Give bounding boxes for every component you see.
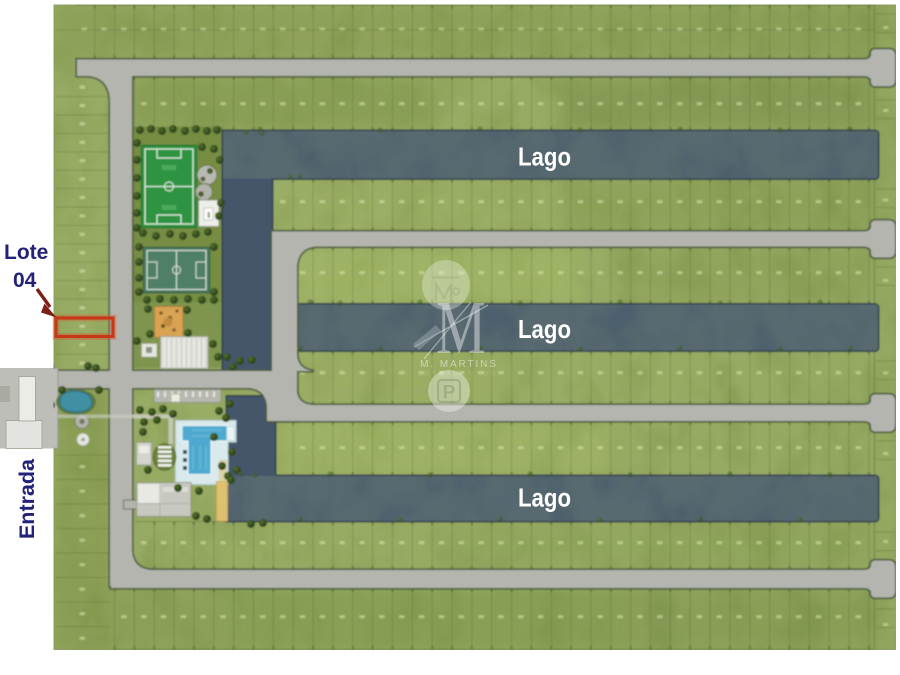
- svg-text:Lago: Lago: [518, 142, 571, 172]
- svg-text:P: P: [443, 383, 456, 404]
- svg-text:M: M: [436, 286, 486, 370]
- svg-text:Lago: Lago: [518, 483, 571, 513]
- svg-text:Lago: Lago: [518, 314, 571, 344]
- svg-text:M. MARTINS: M. MARTINS: [420, 359, 498, 370]
- svg-text:Entrada: Entrada: [15, 458, 39, 539]
- svg-text:04: 04: [13, 269, 37, 292]
- svg-text:Lote: Lote: [4, 241, 48, 264]
